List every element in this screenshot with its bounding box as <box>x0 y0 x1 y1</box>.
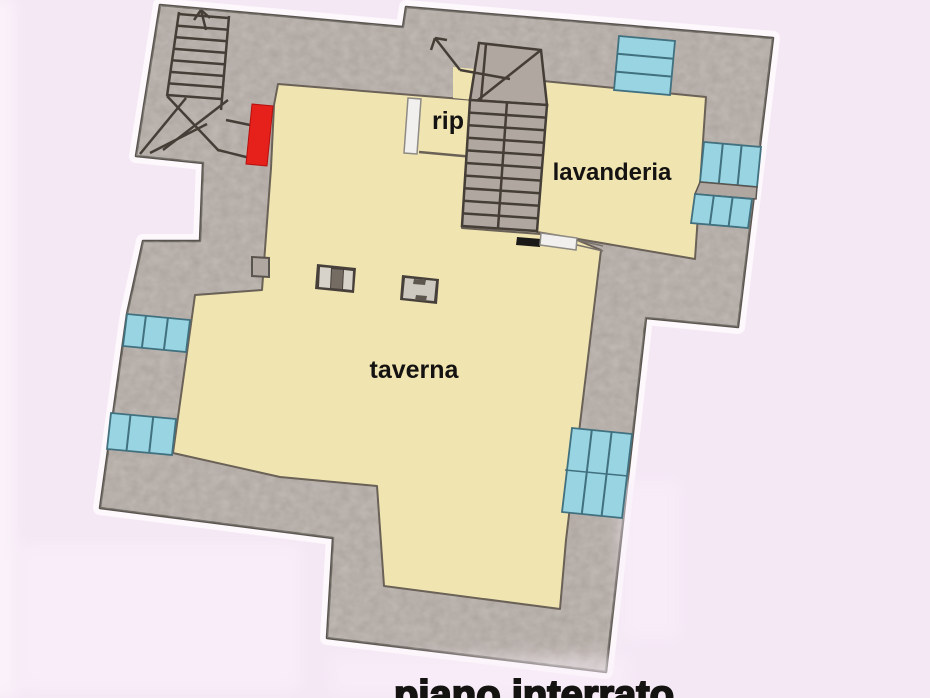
svg-text:lavanderia: lavanderia <box>553 159 672 186</box>
svg-text:piano interrato: piano interrato <box>394 673 674 698</box>
svg-text:taverna: taverna <box>370 356 460 384</box>
svg-text:rip: rip <box>432 107 464 135</box>
